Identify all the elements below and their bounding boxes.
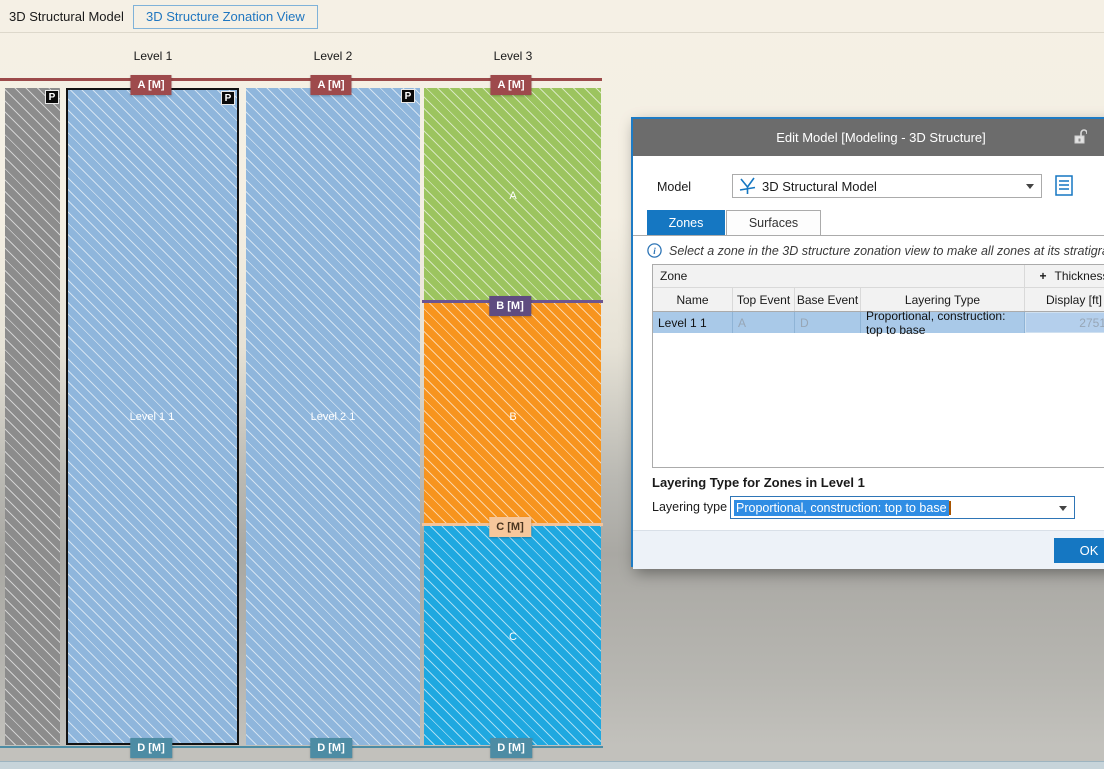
cell-base-event: D	[795, 312, 861, 333]
col-header-display: Display [ft]	[1025, 288, 1104, 311]
info-icon: i	[647, 243, 662, 258]
zonation-view-tab[interactable]: 3D Structure Zonation View	[133, 5, 318, 29]
chevron-down-icon	[1026, 184, 1034, 189]
layering-type-dropdown[interactable]: Proportional, construction: top to base	[730, 496, 1075, 519]
dialog-footer: OK	[633, 530, 1104, 569]
unlock-icon[interactable]	[1073, 129, 1087, 145]
zone-b-label: B	[509, 411, 516, 423]
cell-display-thickness: 2751.1	[1025, 312, 1104, 333]
horizon-c-badge: C [M]	[489, 517, 531, 537]
pillar-p-badge-level1: P	[221, 91, 235, 105]
level-1-header: Level 1	[134, 49, 173, 63]
pillar-p-badge-level2: P	[401, 89, 415, 103]
dialog-title: Edit Model [Modeling - 3D Structure]	[633, 119, 1104, 156]
pillar-p-badge-left: P	[45, 90, 59, 104]
cell-top-event: A	[733, 312, 795, 333]
group-header-zone: Zone	[653, 265, 1025, 287]
horizon-a-badge-level2: A [M]	[310, 75, 351, 95]
col-header-top-event: Top Event	[733, 288, 795, 311]
zones-table: Zone + Thickness Name Top Event Base Eve…	[652, 264, 1104, 468]
petrel-workspace: 3D Structural Model 3D Structure Zonatio…	[0, 0, 1104, 769]
cell-name: Level 1 1	[653, 312, 733, 333]
model-dropdown[interactable]: 3D Structural Model	[732, 174, 1042, 198]
text-caret	[949, 501, 951, 515]
structural-model-icon	[739, 177, 756, 195]
horizon-b-badge: B [M]	[489, 296, 531, 316]
col-header-base-event: Base Event	[795, 288, 861, 311]
horizon-a-badge-level1: A [M]	[130, 75, 171, 95]
table-row[interactable]: Level 1 1 A D Proportional, construction…	[653, 312, 1104, 333]
model-label: Model	[657, 180, 691, 194]
status-strip	[0, 761, 1104, 769]
horizon-d-badge-level1: D [M]	[130, 738, 172, 758]
edit-model-dialog: Edit Model [Modeling - 3D Structure] Mod…	[631, 117, 1104, 567]
table-group-header: Zone + Thickness	[653, 265, 1104, 288]
expand-plus-icon[interactable]: +	[1039, 269, 1046, 283]
col-header-name: Name	[653, 288, 733, 311]
cell-layering-type: Proportional, construction: top to base	[861, 312, 1025, 333]
tab-surfaces[interactable]: Surfaces	[726, 210, 821, 236]
zone-c-label: C	[509, 631, 517, 643]
tab-zones[interactable]: Zones	[647, 210, 725, 236]
group-header-thickness[interactable]: + Thickness	[1025, 265, 1104, 287]
horizon-d-badge-level2: D [M]	[310, 738, 352, 758]
horizon-a-badge-level3: A [M]	[490, 75, 531, 95]
tab-divider	[633, 235, 1104, 236]
horizon-d-badge-level3: D [M]	[490, 738, 532, 758]
model-dropdown-value: 3D Structural Model	[762, 179, 877, 194]
layering-section-heading: Layering Type for Zones in Level 1	[652, 475, 865, 490]
active-model-title: 3D Structural Model	[9, 9, 124, 24]
select-from-list-icon[interactable]	[1055, 175, 1073, 196]
zone-level-2-1-label: Level 2 1	[311, 411, 356, 423]
layering-type-label: Layering type	[652, 500, 727, 514]
level-3-header: Level 3	[494, 49, 533, 63]
pillar-column[interactable]	[5, 88, 60, 745]
view-toolbar: 3D Structural Model 3D Structure Zonatio…	[0, 0, 1104, 33]
chevron-down-icon	[1059, 506, 1067, 511]
zone-a-label: A	[509, 190, 516, 202]
layering-type-selected-value: Proportional, construction: top to base	[734, 500, 949, 516]
zone-level-1-1-label: Level 1 1	[130, 411, 175, 423]
info-message: i Select a zone in the 3D structure zona…	[647, 243, 1104, 261]
level-2-header: Level 2	[314, 49, 353, 63]
ok-button[interactable]: OK	[1054, 538, 1104, 563]
